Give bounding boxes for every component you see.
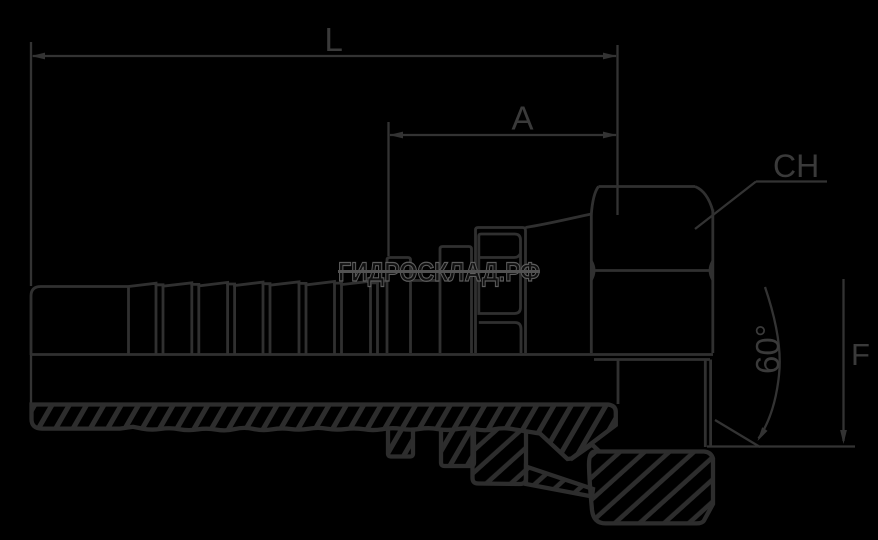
svg-text:60°: 60° bbox=[749, 324, 786, 374]
svg-text:A: A bbox=[512, 100, 534, 137]
svg-text:CH: CH bbox=[773, 148, 819, 184]
svg-text:L: L bbox=[325, 21, 343, 58]
svg-text:F: F bbox=[851, 337, 870, 372]
